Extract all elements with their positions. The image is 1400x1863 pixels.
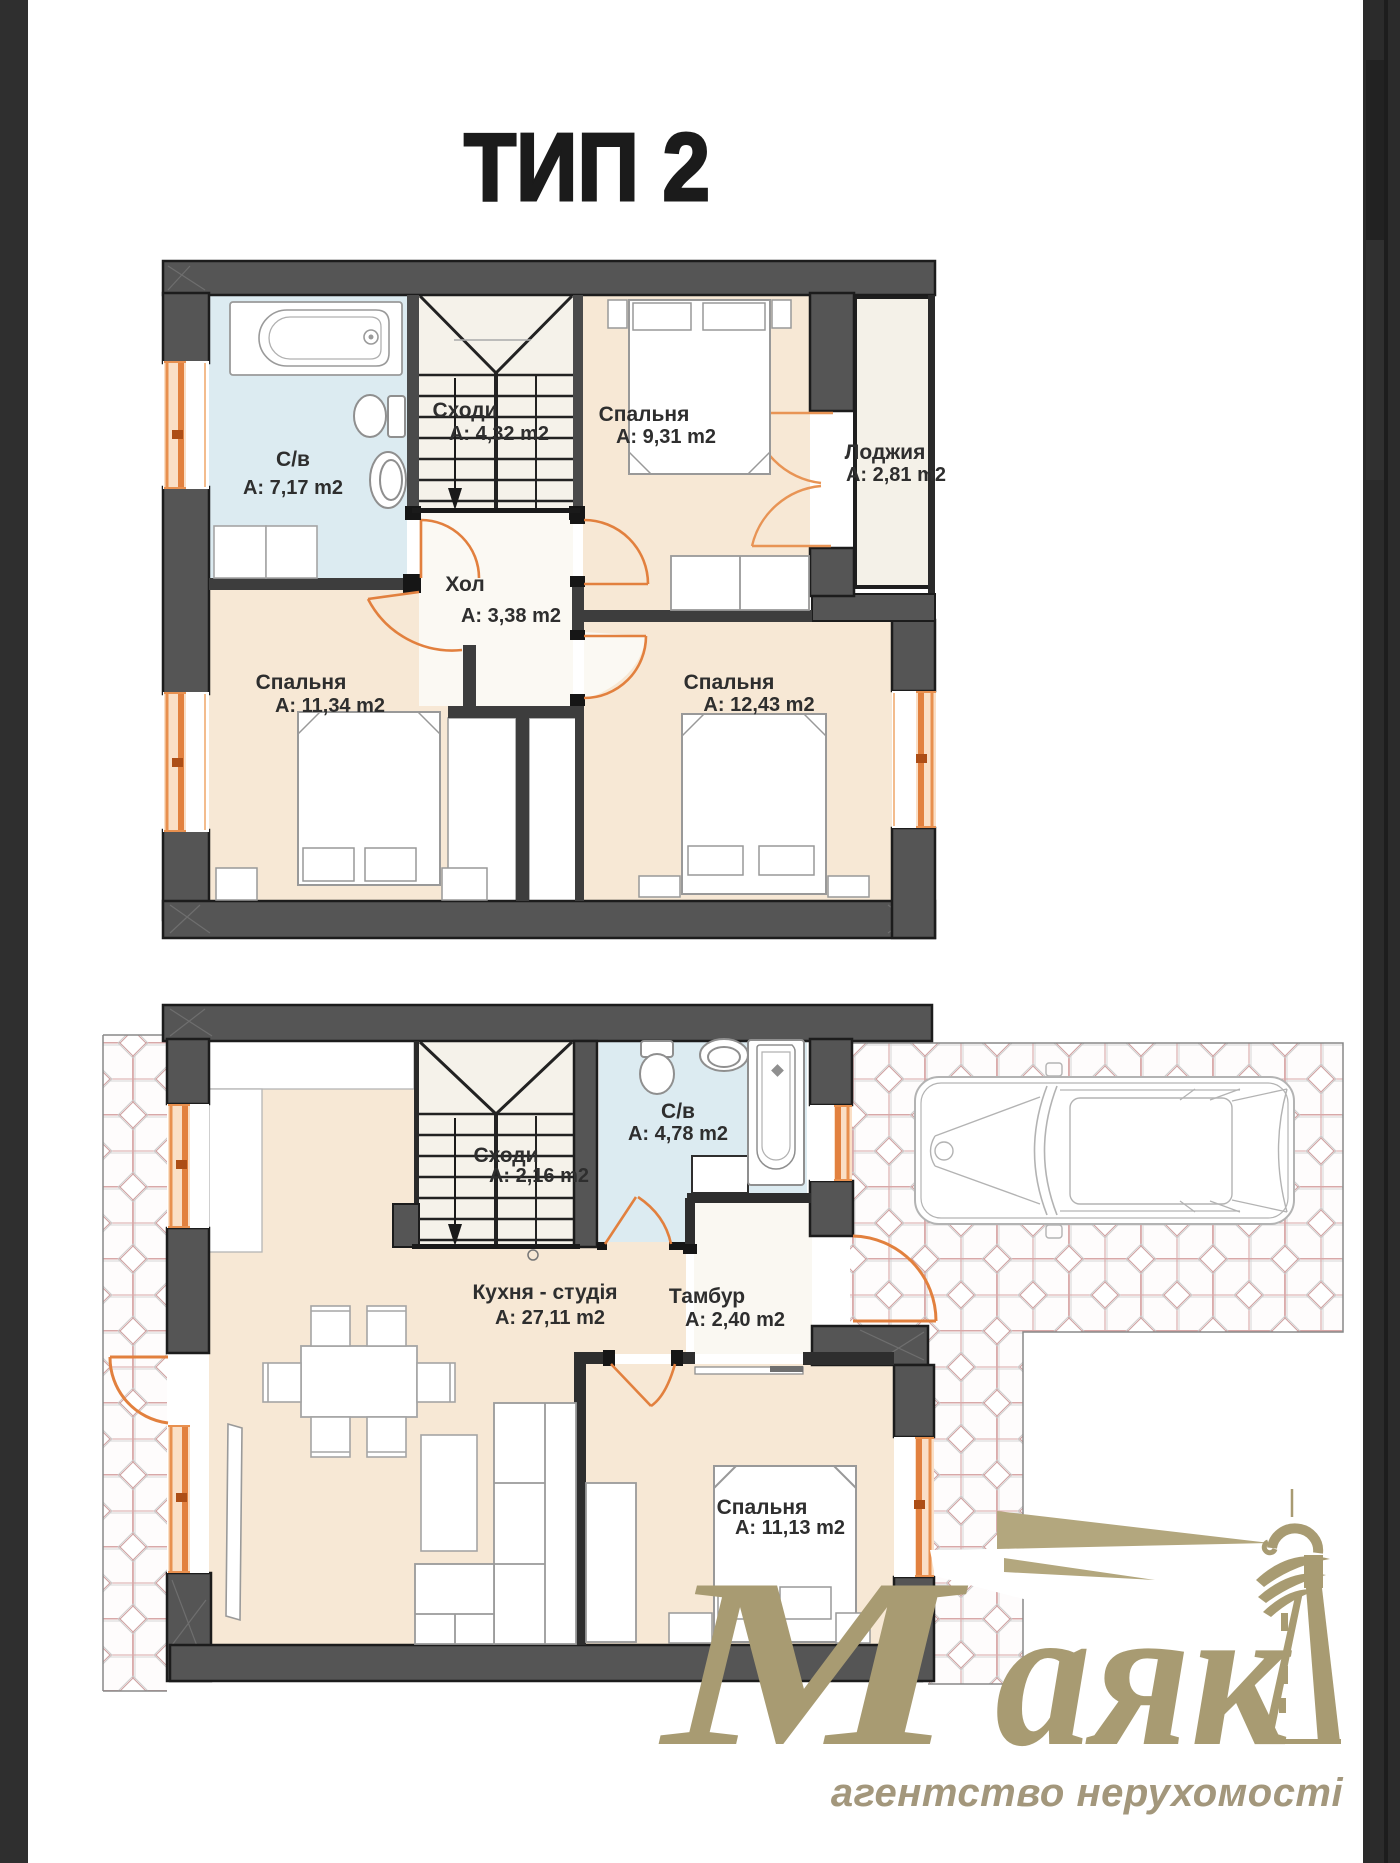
svg-text:A: 4,32 m2: A: 4,32 m2	[449, 423, 549, 445]
svg-text:М: М	[657, 1529, 968, 1797]
svg-text:A: 9,31 m2: A: 9,31 m2	[616, 426, 716, 448]
svg-text:A: 7,17 m2: A: 7,17 m2	[243, 477, 343, 499]
svg-text:A: 11,34 m2: A: 11,34 m2	[275, 695, 385, 717]
svg-text:Тамбур: Тамбур	[669, 1285, 745, 1308]
svg-text:A: 12,43 m2: A: 12,43 m2	[703, 694, 814, 716]
svg-text:A: 2,16 m2: A: 2,16 m2	[489, 1165, 589, 1187]
svg-text:Спальня: Спальня	[599, 403, 690, 426]
svg-text:A: 2,81 m2: A: 2,81 m2	[846, 464, 946, 486]
svg-text:A: 2,40 m2: A: 2,40 m2	[685, 1309, 785, 1331]
svg-text:С/в: С/в	[661, 1100, 695, 1123]
svg-text:A: 4,78 m2: A: 4,78 m2	[628, 1123, 728, 1145]
svg-text:Спальня: Спальня	[256, 671, 347, 694]
svg-text:Сходи: Сходи	[432, 399, 497, 422]
svg-text:A: 3,38 m2: A: 3,38 m2	[461, 605, 561, 627]
svg-text:Хол: Хол	[445, 573, 484, 596]
svg-text:Сходи: Сходи	[473, 1144, 538, 1167]
svg-text:Лоджия: Лоджия	[845, 441, 926, 464]
svg-text:Спальня: Спальня	[684, 671, 775, 694]
svg-text:агентство нерухомості: агентство нерухомості	[831, 1771, 1344, 1815]
svg-text:С/в: С/в	[276, 448, 310, 471]
svg-text:A: 27,11 m2: A: 27,11 m2	[495, 1307, 605, 1329]
svg-text:Кухня - студія: Кухня - студія	[472, 1281, 617, 1304]
svg-text:ТИП 2: ТИП 2	[464, 114, 710, 221]
svg-text:аяк: аяк	[995, 1563, 1292, 1789]
